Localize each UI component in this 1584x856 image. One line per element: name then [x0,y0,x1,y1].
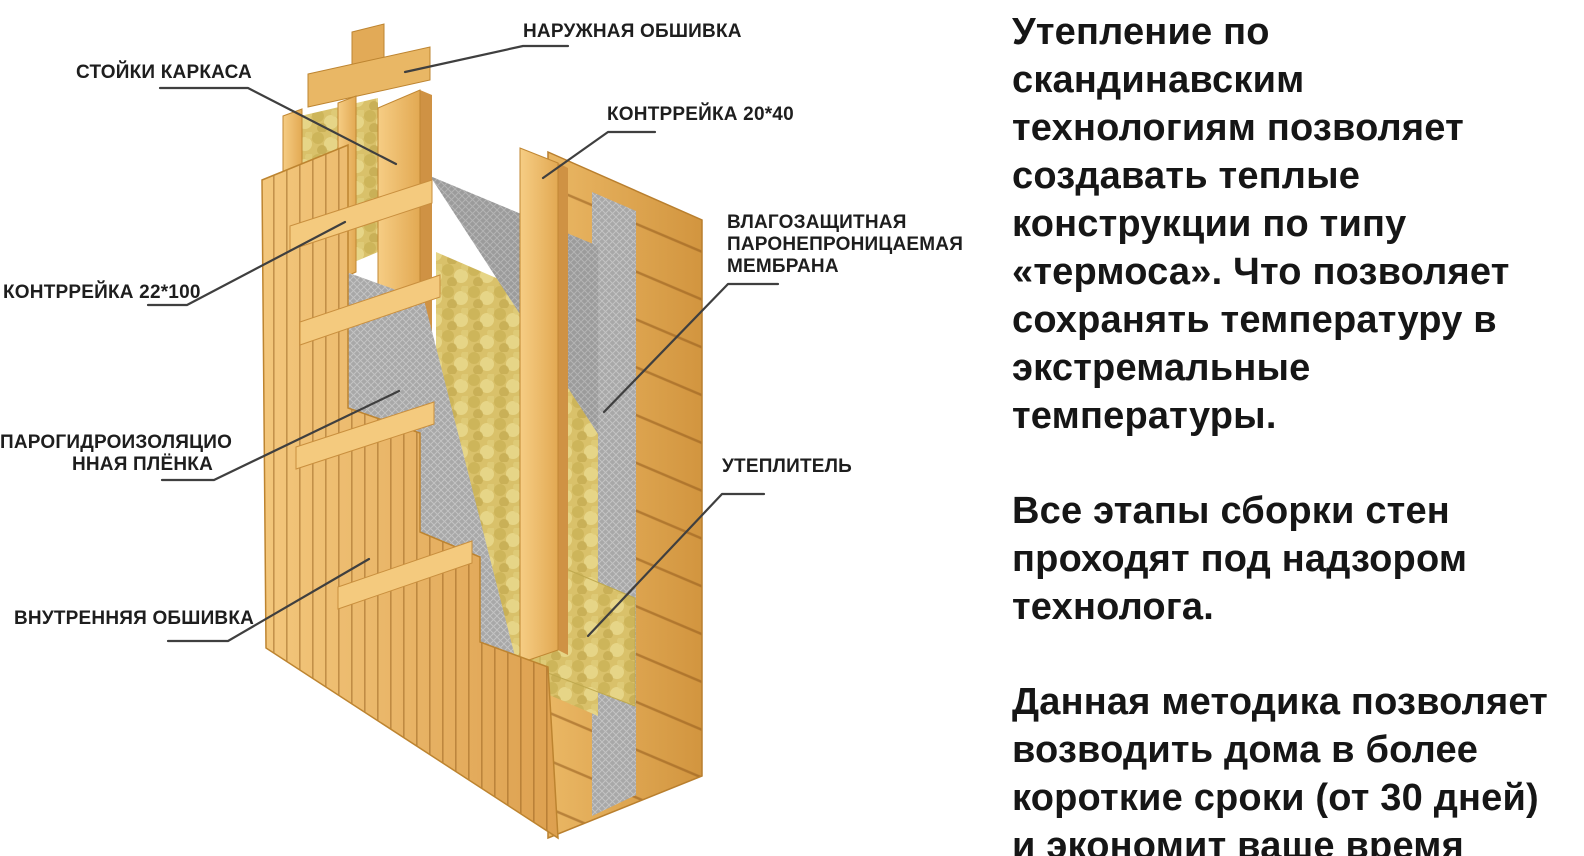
label-vapor-film: ПАРОГИДРОИЗОЛЯЦИО ННАЯ ПЛЁНКА [0,432,213,476]
description-paragraph-1: Утепление по скандинавским технологиям п… [1012,8,1578,440]
label-moisture-membrane: ВЛАГОЗАЩИТНАЯ ПАРОНЕПРОНИЦАЕМАЯ МЕМБРАНА [727,212,963,278]
infographic-root: НАРУЖНАЯ ОБШИВКА СТОЙКИ КАРКАСА КОНТРРЕЙ… [0,0,1584,856]
wall-illustration [0,0,960,856]
label-outer-cladding: НАРУЖНАЯ ОБШИВКА [523,21,742,43]
counter-batten-20-40-board [520,148,568,663]
moisture-membrane-layer [592,192,636,816]
description-paragraph-2: Все этапы сборки стен проходят под надзо… [1012,487,1578,631]
description-paragraph-3: Данная методика позволяет возводить дома… [1012,678,1578,856]
label-insulation: УТЕПЛИТЕЛЬ [722,456,852,478]
label-inner-cladding: ВНУТРЕННЯЯ ОБШИВКА [14,608,254,630]
description-panel: Утепление по скандинавским технологиям п… [1012,8,1578,856]
wall-diagram-area: НАРУЖНАЯ ОБШИВКА СТОЙКИ КАРКАСА КОНТРРЕЙ… [0,0,960,856]
label-frame-studs: СТОЙКИ КАРКАСА [76,62,252,84]
label-counter-batten-22-100: КОНТРРЕЙКА 22*100 [3,282,201,304]
label-counter-batten-20-40: КОНТРРЕЙКА 20*40 [607,104,794,126]
